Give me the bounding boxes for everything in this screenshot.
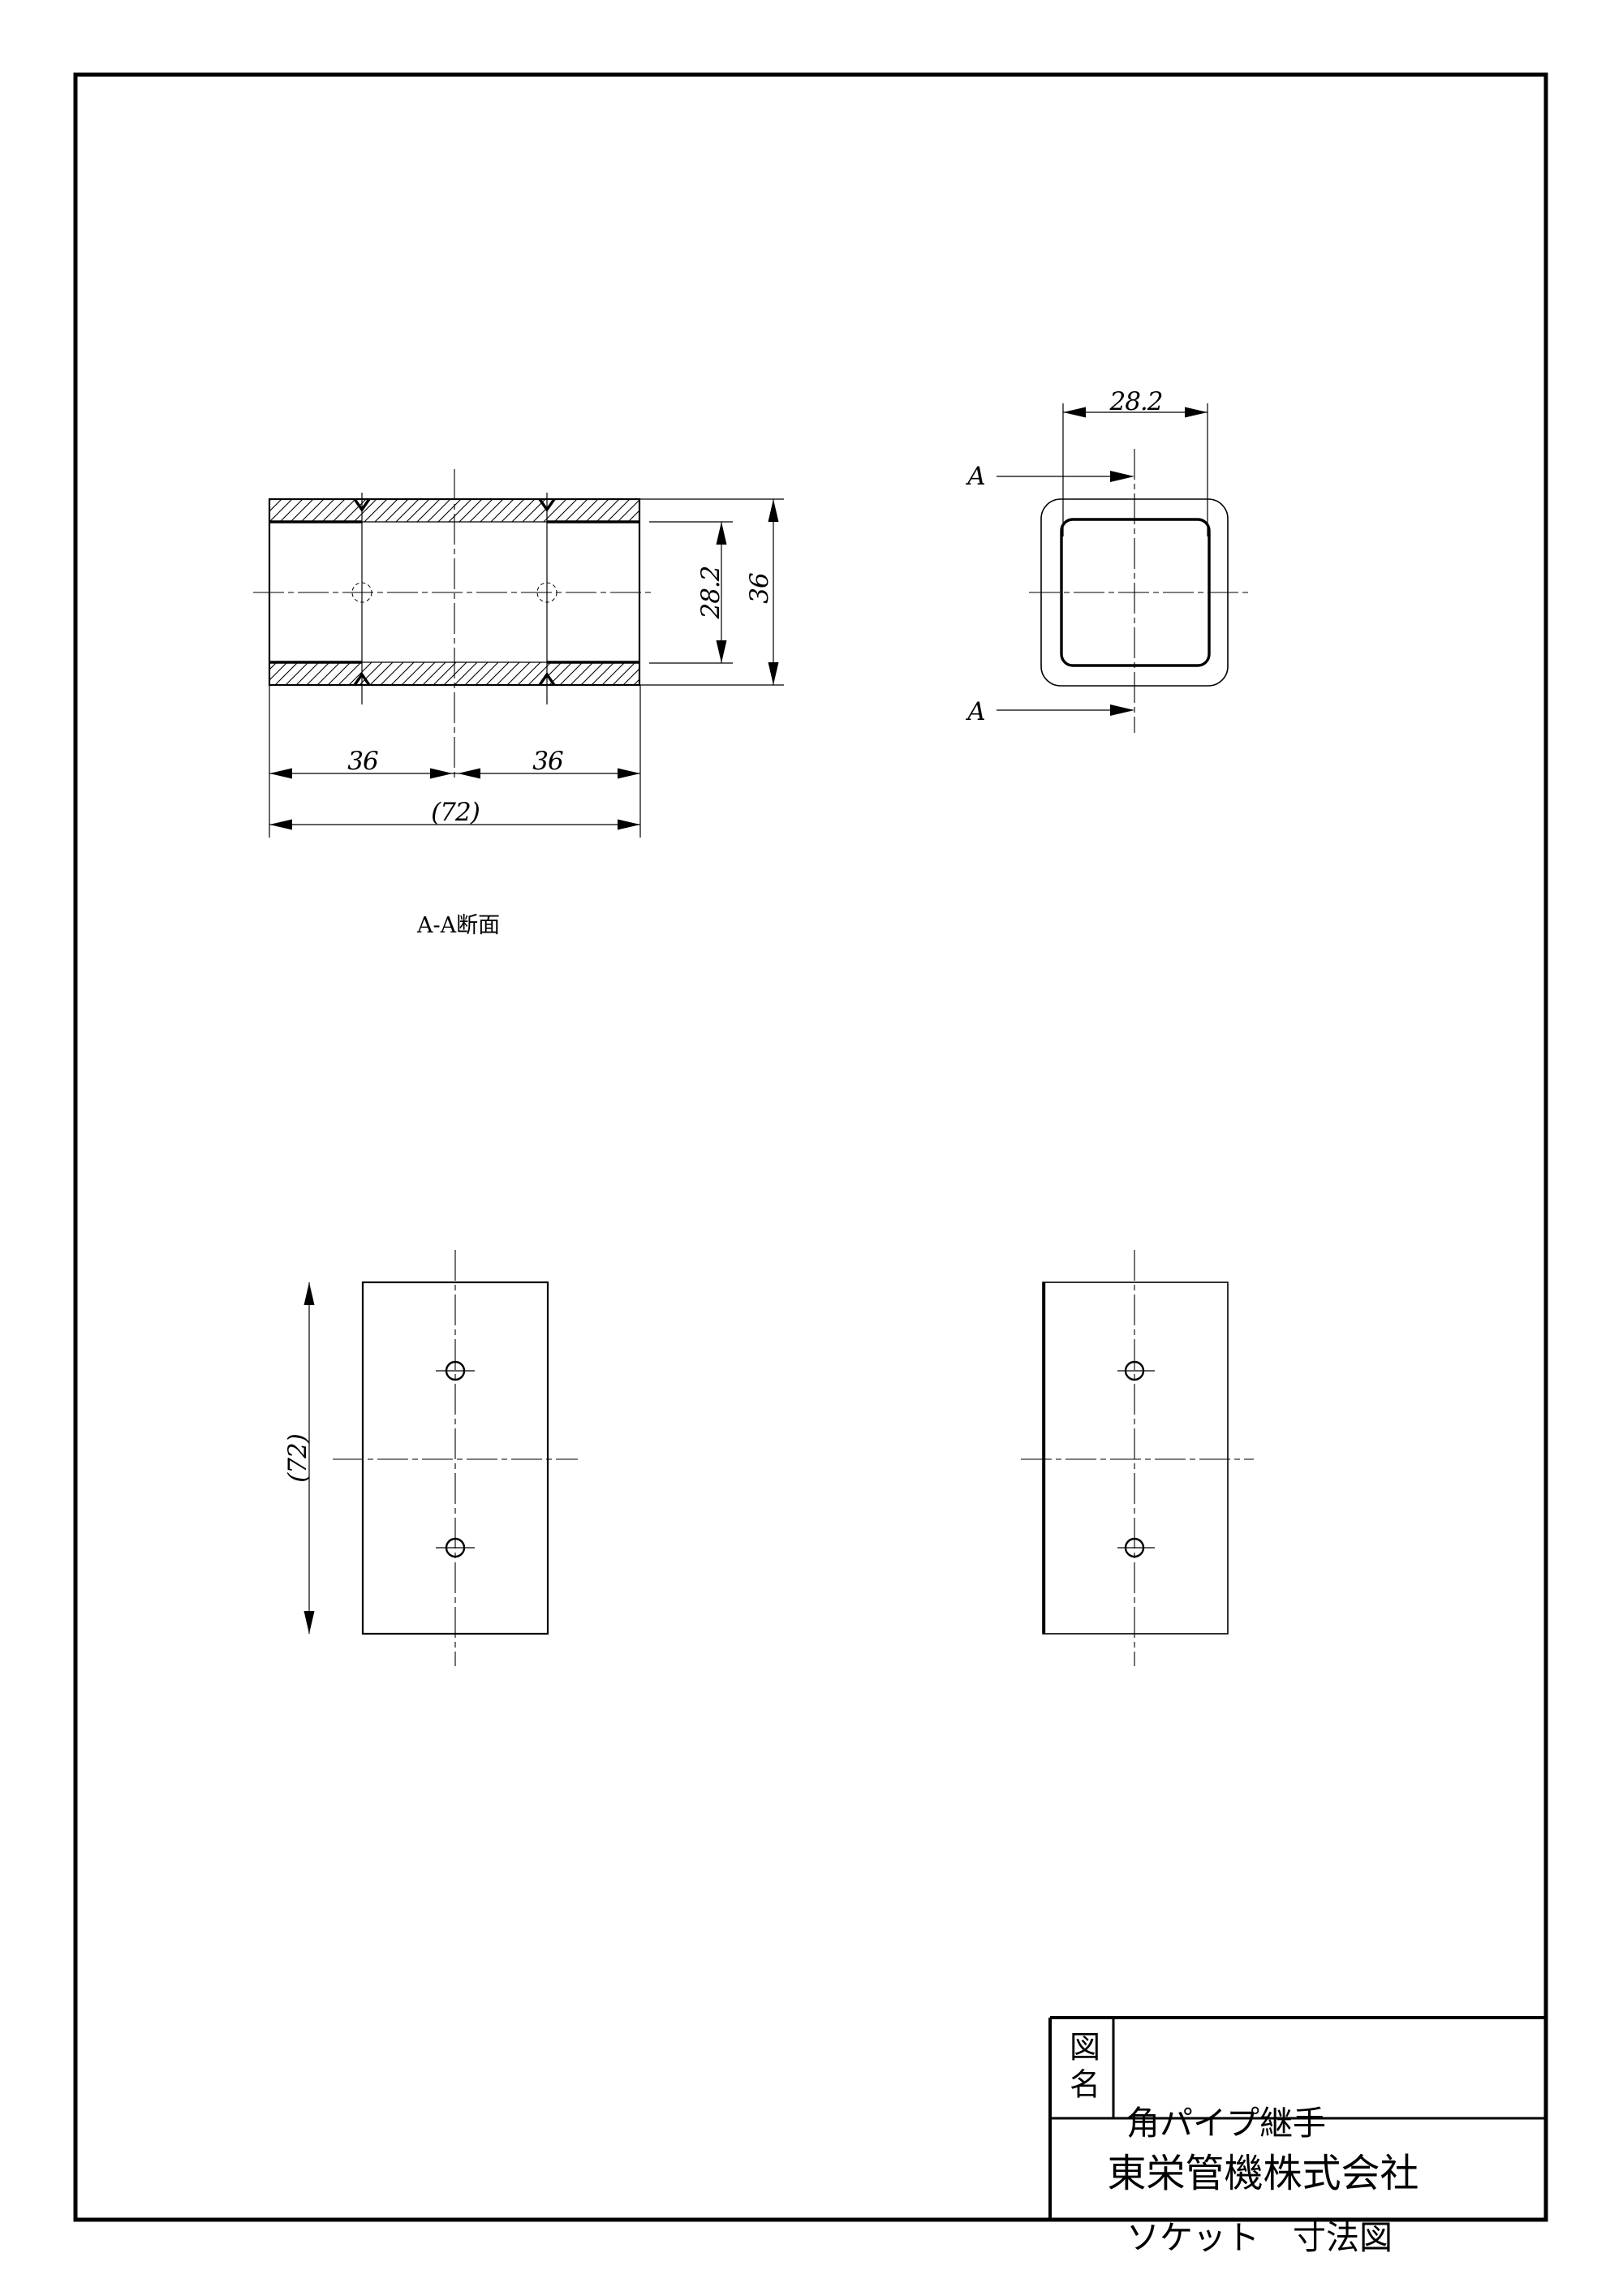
cutting-plane-bottom: A	[965, 697, 1134, 726]
dimension-length: (72)	[283, 1282, 315, 1634]
dim-length-text: (72)	[283, 1434, 312, 1483]
drawing-sheet: 28.2 36 36 36 (72) A-A断面	[0, 0, 1623, 2296]
dimension-inner-width: 28.2	[1063, 387, 1208, 536]
section-view: 28.2 36 36 36 (72) A-A断面	[253, 469, 784, 938]
dim-inner-height-text: 28.2	[696, 566, 725, 619]
cutting-plane-top: A	[965, 462, 1134, 491]
dim-segment-right-text: 36	[532, 747, 563, 776]
plan-view-right	[1021, 1250, 1254, 1666]
cut-marker-bottom-text: A	[965, 697, 984, 726]
dim-segment-left-text: 36	[347, 747, 378, 776]
title-block-label: 図名	[1050, 2018, 1113, 2118]
section-view-label: A-A断面	[416, 913, 500, 938]
dimension-overall-width: (72)	[269, 798, 640, 830]
dim-outer-height-text: 36	[745, 573, 774, 604]
end-view: 28.2 A A	[965, 387, 1251, 733]
plan-view-left: (72)	[283, 1250, 578, 1666]
plan-left-centerlines	[333, 1250, 578, 1666]
sheet-border	[75, 75, 1546, 2220]
dim-inner-width-text: 28.2	[1109, 387, 1162, 416]
drawing-name-line2: ソケット 寸法図	[1126, 2219, 1540, 2257]
dim-overall-width-text: (72)	[431, 798, 480, 827]
company-name: 東栄管機株式会社	[1050, 2118, 1546, 2220]
drawing-canvas: 28.2 36 36 36 (72) A-A断面	[0, 0, 1623, 2296]
dimension-inner-height: 28.2	[649, 522, 733, 663]
plan-right-outline	[1043, 1282, 1228, 1634]
cut-marker-top-text: A	[965, 462, 984, 491]
plan-right-centerlines	[1021, 1250, 1254, 1666]
